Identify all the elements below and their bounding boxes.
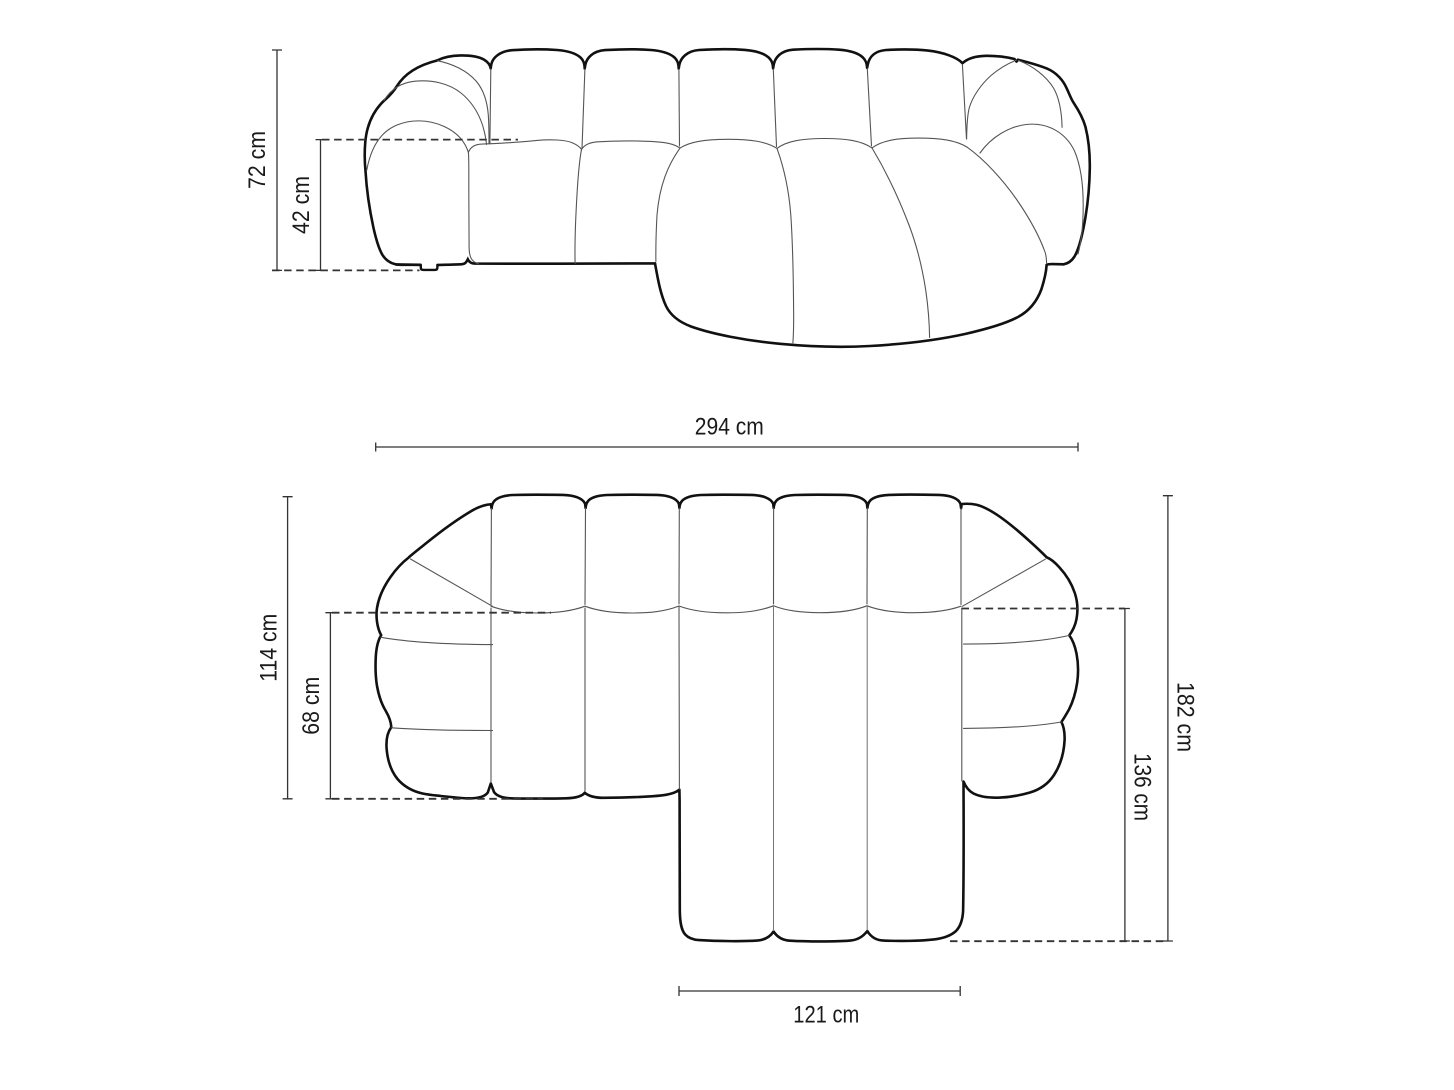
svg-text:68 cm: 68 cm [298, 677, 325, 735]
svg-text:294 cm: 294 cm [695, 413, 764, 440]
svg-text:121 cm: 121 cm [793, 1002, 859, 1029]
svg-text:136 cm: 136 cm [1128, 753, 1155, 821]
svg-text:114 cm: 114 cm [255, 614, 282, 682]
svg-text:42 cm: 42 cm [288, 176, 315, 234]
svg-text:72 cm: 72 cm [244, 131, 271, 189]
svg-text:182 cm: 182 cm [1172, 682, 1199, 752]
